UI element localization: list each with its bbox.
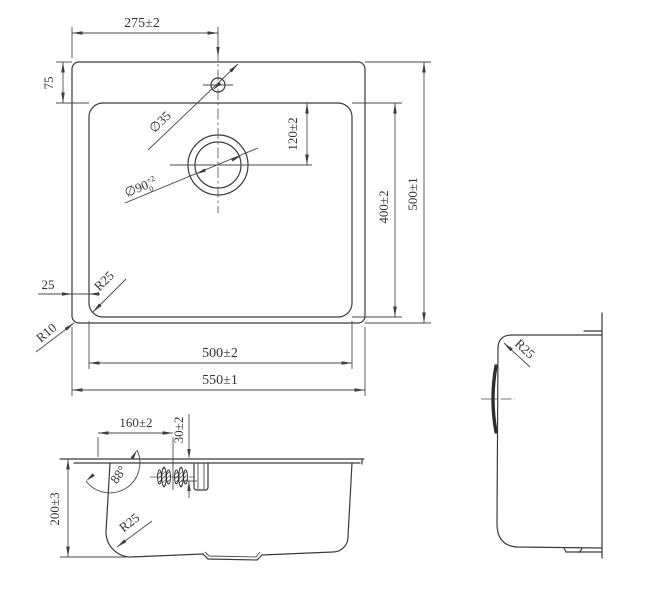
dim-bowl-width: 500±2 (202, 346, 238, 361)
dim-overflow-drop: 30±2 (171, 417, 186, 444)
dim-bowl-height: 200±3 (47, 492, 62, 525)
dim-drain-from-top: 120±2 (285, 117, 300, 150)
dim-overflow-offset: 160±2 (119, 415, 152, 430)
dim-deck-top: 75 (41, 77, 56, 90)
sink-technical-drawing-page: 275±2 75 120±2 400±2 500±1 25 R25 R10 (0, 0, 661, 600)
sink-technical-drawing: 275±2 75 120±2 400±2 500±1 25 R25 R10 (0, 0, 661, 600)
dim-deck-side: 25 (42, 277, 55, 292)
dim-faucet-offset: 275±2 (124, 16, 160, 31)
dim-overall-depth: 500±1 (405, 177, 420, 210)
dim-bowl-depth: 400±2 (376, 190, 391, 223)
background (0, 0, 661, 600)
dim-overall-width: 550±1 (202, 373, 238, 388)
